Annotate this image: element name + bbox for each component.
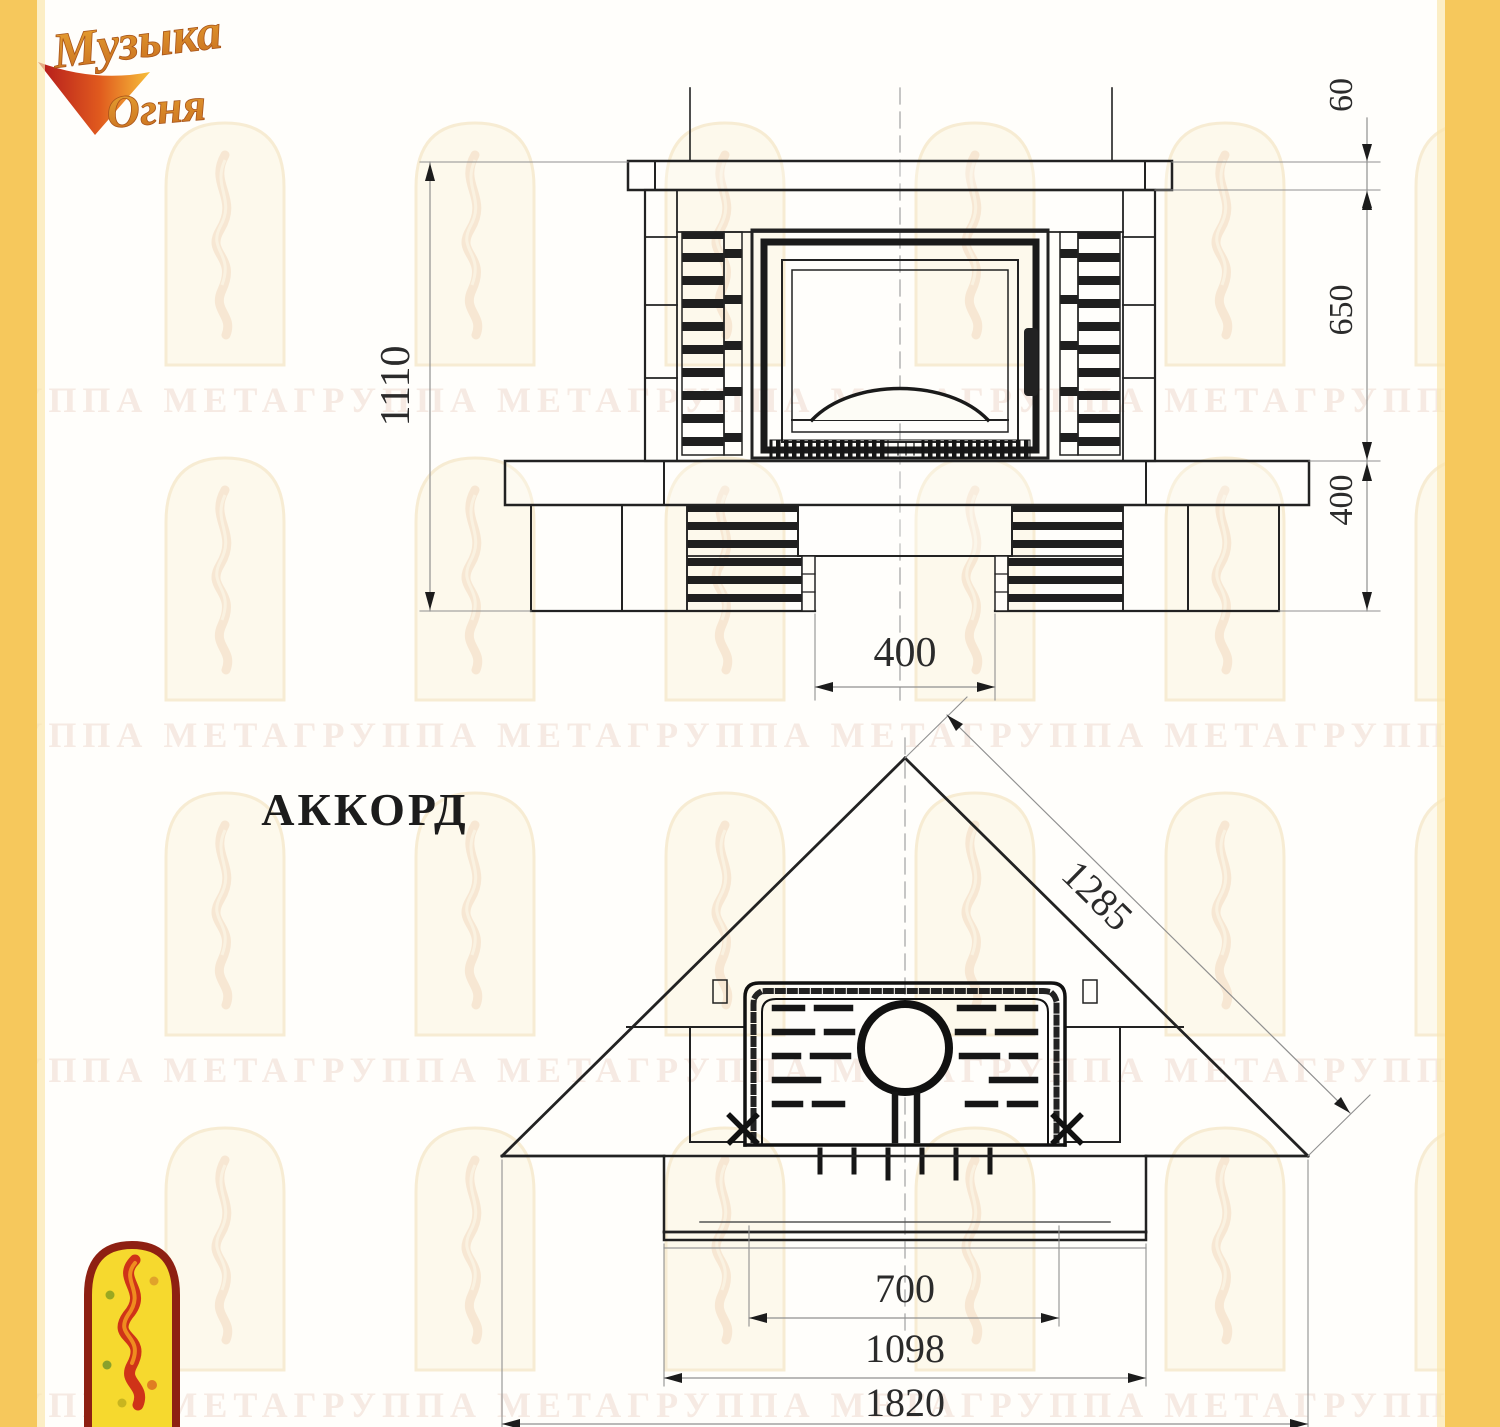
brick-column-left xyxy=(682,232,724,455)
dim-400-bottom-label: 400 xyxy=(874,630,937,676)
logo-word2: Огня xyxy=(104,78,208,137)
dim-1098-label: 1098 xyxy=(865,1326,945,1371)
dim-650-label: 650 xyxy=(1323,285,1360,336)
watermark-text-row: ГРУППА МЕТАГРУППА МЕТАГРУППА МЕТАГРУППА … xyxy=(0,1385,1500,1425)
door-handle xyxy=(1024,328,1038,396)
left-strip-fade xyxy=(37,0,45,1427)
mantel-shelf xyxy=(628,161,1172,190)
brick-column-right xyxy=(1078,232,1120,455)
dim-60-label: 60 xyxy=(1323,78,1360,112)
vent-grille-right xyxy=(922,440,1030,458)
watermark-layer: ГРУППА МЕТАГРУППА МЕТАГРУППА МЕТАГРУППА … xyxy=(0,123,1500,1425)
dim-1110-label: 1110 xyxy=(373,346,419,427)
dim-1285-label: 1285 xyxy=(1053,851,1142,939)
left-accent-strip xyxy=(0,0,37,1427)
flame-emblem xyxy=(88,1245,176,1427)
brand-logo: Музыка Огня xyxy=(38,3,224,138)
dim-1820-label: 1820 xyxy=(865,1380,945,1425)
right-accent-strip xyxy=(1445,0,1500,1427)
watermark-text-row: ГРУППА МЕТАГРУППА МЕТАГРУППА МЕТАГРУППА … xyxy=(0,1050,1500,1090)
watermark-text-row: ГРУППА МЕТАГРУППА МЕТАГРУППА МЕТАГРУППА … xyxy=(0,715,1500,755)
dim-400-right-label: 400 xyxy=(1323,475,1360,526)
flue-outlet-circle xyxy=(861,1004,949,1092)
right-strip-fade xyxy=(1437,0,1445,1427)
watermark-text-row: ГРУППА МЕТАГРУППА МЕТАГРУППА МЕТАГРУППА … xyxy=(0,380,1500,420)
logo-word1: Музыка xyxy=(49,3,225,79)
dim-700-label: 700 xyxy=(875,1266,935,1311)
fireplace-drawing-sheet: ГРУППА МЕТАГРУППА МЕТАГРУППА МЕТАГРУППА … xyxy=(0,0,1500,1427)
model-title: АККОРД xyxy=(261,784,468,835)
hearth-shelf xyxy=(505,461,1309,505)
vent-grille-left xyxy=(770,440,888,458)
page: ГРУППА МЕТАГРУППА МЕТАГРУППА МЕТАГРУППА … xyxy=(0,0,1500,1427)
